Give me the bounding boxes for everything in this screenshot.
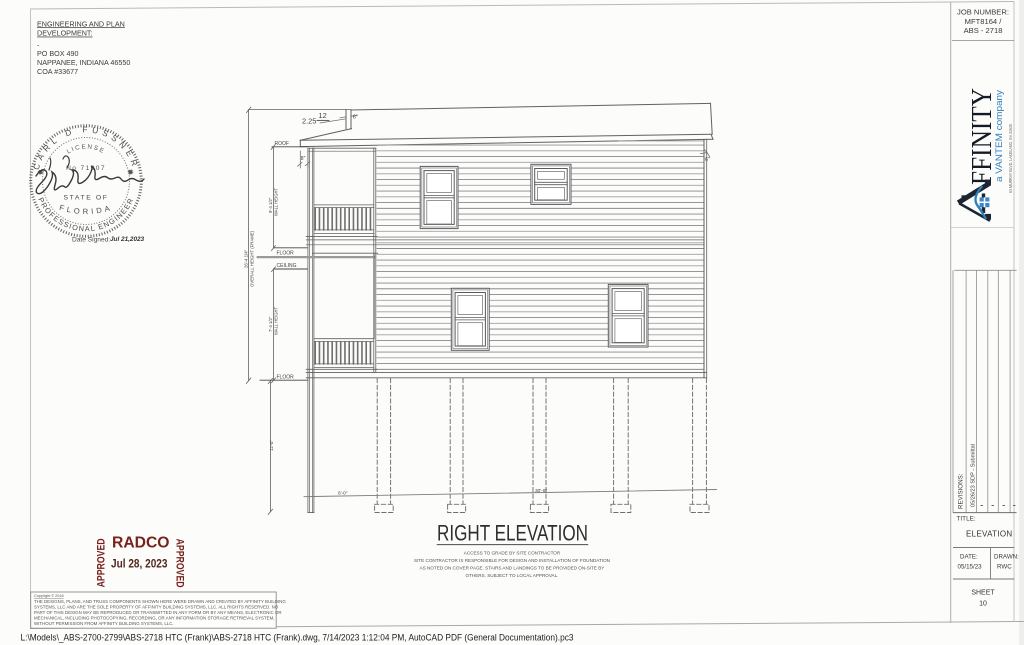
- svg-text:COA #33677: COA #33677: [37, 67, 78, 76]
- svg-text:DATE:: DATE:: [960, 554, 978, 561]
- svg-text:JOB NUMBER:: JOB NUMBER:: [957, 8, 1009, 17]
- svg-text:SITE CONTRACTOR IS RESPONSIBLE: SITE CONTRACTOR IS RESPONSIBLE FOR DESIG…: [414, 558, 610, 563]
- svg-text:2.25: 2.25: [302, 116, 316, 125]
- svg-text:PART OF THIS DESIGN MAY BE REP: PART OF THIS DESIGN MAY BE REPRODUCED OR…: [34, 610, 282, 615]
- svg-text:26'-4 1/4": 26'-4 1/4": [243, 249, 248, 268]
- svg-text:REVISIONS:: REVISIONS:: [958, 473, 965, 509]
- svg-text:05/15/23: 05/15/23: [958, 564, 983, 571]
- svg-text:WITHOUT PERMISSION FROM AFFINI: WITHOUT PERMISSION FROM AFFINITY BUILDIN…: [34, 621, 174, 626]
- svg-text:RIGHT ELEVATION: RIGHT ELEVATION: [437, 521, 588, 546]
- svg-text:MFT8164 /: MFT8164 /: [965, 17, 1003, 26]
- svg-text:a VANTEM company: a VANTEM company: [993, 90, 1004, 182]
- svg-text:ABS - 2718: ABS - 2718: [964, 26, 1003, 35]
- svg-text:MECHANICAL, INCLUDING PHOTOCOP: MECHANICAL, INCLUDING PHOTOCOPYING, RECO…: [34, 616, 274, 621]
- svg-text:ACCESS TO GRADE BY SITE CONTRA: ACCESS TO GRADE BY SITE CONTRACTOR: [464, 551, 561, 556]
- svg-text:6": 6": [353, 114, 358, 120]
- svg-text:THE DESIGNS, PLANS, AND TRUSS: THE DESIGNS, PLANS, AND TRUSS COMPONENTS…: [34, 599, 286, 604]
- svg-text:FLOOR: FLOOR: [277, 374, 295, 380]
- svg-text:OTHERS. SUBJECT TO LOCAL APPR: OTHERS. SUBJECT TO LOCAL APPROVAL.: [466, 573, 559, 578]
- svg-text:05/26/23 SDP - Submittal: 05/26/23 SDP - Submittal: [971, 444, 977, 507]
- svg-text:ROOF: ROOF: [275, 141, 289, 147]
- svg-text:WALL HEIGHT: WALL HEIGHT: [274, 187, 279, 216]
- svg-text:7'-4 1/2": 7'-4 1/2": [268, 316, 273, 332]
- svg-text:APPROVED: APPROVED: [174, 539, 186, 588]
- svg-text:DEVELOPMENT:: DEVELOPMENT:: [37, 29, 93, 38]
- svg-text:8": 8": [301, 156, 306, 162]
- svg-text:RWC: RWC: [997, 564, 1012, 571]
- svg-text:RADCO: RADCO: [112, 534, 170, 551]
- svg-text:12: 12: [319, 111, 327, 120]
- svg-text:SYSTEMS, LLC AND ARE THE SOLE: SYSTEMS, LLC AND ARE THE SOLE PROPERTY O…: [34, 604, 279, 609]
- svg-text:WALL HEIGHT: WALL HEIGHT: [274, 306, 279, 335]
- svg-text:12'-0": 12'-0": [269, 440, 274, 451]
- svg-text:OVERALL HEIGHT (FRAME): OVERALL HEIGHT (FRAME): [249, 230, 254, 287]
- svg-text:TITLE:: TITLE:: [957, 516, 976, 523]
- svg-text:6'-0": 6'-0": [338, 491, 348, 497]
- svg-text:SHEET: SHEET: [971, 590, 995, 597]
- svg-text:63 MURRAY BLVD, LAKELAND, GA: 63 MURRAY BLVD, LAKELAND, GA 31635: [1008, 123, 1013, 193]
- svg-text:10: 10: [979, 601, 987, 608]
- svg-text:30'-6": 30'-6": [535, 488, 548, 494]
- svg-text:PO BOX 490: PO BOX 490: [37, 49, 79, 58]
- svg-text:6": 6": [705, 157, 710, 163]
- svg-text:Copyright © 2018: Copyright © 2018: [34, 594, 64, 598]
- svg-text:FLOOR: FLOOR: [277, 251, 295, 257]
- svg-text:L:\Models\_ABS-2700-2799\ABS-2: L:\Models\_ABS-2700-2799\ABS-2718 HTC (F…: [21, 633, 574, 644]
- svg-text:Jul 28, 2023: Jul 28, 2023: [111, 556, 168, 570]
- svg-text:STATE OF: STATE OF: [63, 195, 108, 202]
- svg-text:DRAWN:: DRAWN:: [994, 554, 1019, 561]
- svg-text:Date Signed:: Date Signed:: [72, 237, 110, 244]
- svg-text:AS NOTED ON COVER PAGE. STAIR: AS NOTED ON COVER PAGE. STAIRS AND LANDI…: [420, 566, 605, 571]
- svg-text:ELEVATION: ELEVATION: [966, 530, 1012, 539]
- svg-text:CEILING: CEILING: [277, 263, 297, 269]
- svg-text:APPROVED: APPROVED: [96, 538, 108, 587]
- svg-text:ENGINEERING AND PLAN: ENGINEERING AND PLAN: [37, 19, 125, 28]
- svg-text:NAPPANEE, INDIANA 46550: NAPPANEE, INDIANA 46550: [37, 58, 130, 67]
- svg-text:Jul 21,2023: Jul 21,2023: [110, 236, 145, 243]
- svg-text:9'-4 1/2": 9'-4 1/2": [268, 197, 273, 213]
